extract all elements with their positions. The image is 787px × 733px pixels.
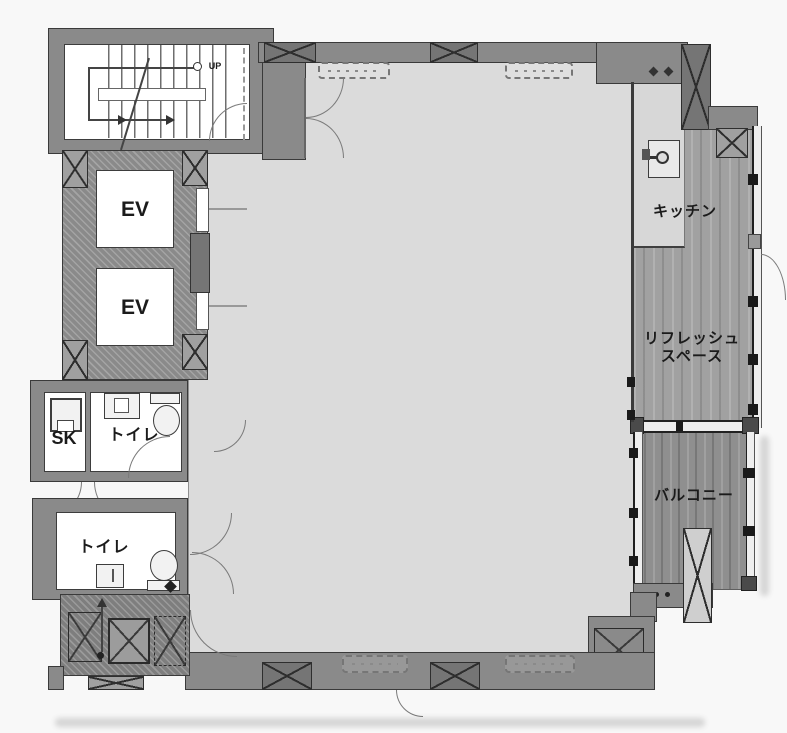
column: [262, 662, 312, 690]
window-mullion: [627, 410, 635, 420]
floor-plan: UP: [0, 0, 787, 733]
kitchen-tap-block: [642, 149, 650, 160]
refresh-space-label: リフレッシュ スペース: [630, 330, 754, 366]
conduit-dot: [97, 652, 104, 659]
window-mullion: [748, 404, 758, 415]
stair-arrow: [166, 115, 175, 125]
column: [62, 340, 88, 380]
elevator-label: EV: [96, 295, 174, 320]
toilet-sink: [96, 564, 124, 588]
rail-post: [743, 468, 755, 478]
column: [62, 150, 88, 188]
balcony-corner-column: [683, 528, 712, 623]
column: [264, 42, 316, 63]
window-mullion: [676, 421, 683, 431]
shaft-arrow: [97, 598, 107, 607]
refresh-space-label-line1: リフレッシュ: [630, 330, 754, 348]
column: [430, 42, 478, 63]
rail-post: [743, 526, 755, 536]
kitchen-label: キッチン: [637, 203, 733, 221]
exterior-door-arc: [396, 690, 423, 717]
pipe-shaft-box: [108, 618, 150, 664]
shaft-arrow-line: [101, 606, 103, 652]
elevator-door-line: [209, 305, 247, 307]
kitchen-top-wall: [708, 106, 758, 130]
drop-shadow-bottom: [55, 718, 705, 727]
stair-run-line: [88, 67, 196, 69]
refresh-space-label-line2: スペース: [630, 348, 754, 366]
window-vent: [505, 655, 575, 673]
interior-window-line: [631, 82, 634, 422]
door-frame-block: [748, 234, 761, 249]
column: [182, 334, 208, 370]
stair-up-label: UP: [203, 61, 227, 72]
stair-up-start-circle: [193, 62, 202, 71]
toilet-sink-basin: [114, 398, 129, 413]
corner-column: [681, 44, 711, 130]
drop-shadow-right: [760, 436, 769, 596]
top-right-wall: [596, 42, 688, 84]
stair-run-line-vertical: [88, 67, 90, 121]
elevator-door: [196, 188, 209, 232]
rail-post: [629, 556, 638, 566]
column: [430, 662, 480, 690]
balcony-right-rail: [746, 432, 755, 590]
rail-corner-block: [741, 576, 757, 591]
bottom-wall: [185, 652, 655, 690]
window-mullion: [748, 174, 758, 185]
window-vent: [505, 62, 573, 79]
balcony-window-band: [633, 420, 755, 433]
wall-stub: [88, 676, 144, 690]
stair-landing: [98, 88, 206, 101]
toilet-tank: [150, 393, 180, 404]
window-mullion: [748, 296, 758, 307]
toilet-label-lower: トイレ: [58, 538, 150, 557]
elevator-call-pier: [190, 233, 210, 293]
rail-post: [629, 448, 638, 458]
sk-label: SK: [38, 428, 90, 450]
elevator-door-line: [209, 208, 247, 210]
balcony-label: バルコニー: [640, 487, 748, 505]
elevator-label: EV: [96, 197, 174, 222]
window-mullion: [627, 377, 635, 387]
wall-bolt: [665, 592, 670, 597]
column: [182, 150, 208, 186]
window-vent: [342, 655, 408, 673]
exterior-door-arc: [761, 254, 786, 300]
window-vent: [318, 62, 390, 79]
toilet-bowl: [150, 550, 178, 581]
column: [716, 128, 748, 158]
wall-stub: [48, 666, 64, 690]
rail-post: [629, 508, 638, 518]
stair-arrow: [118, 115, 127, 125]
pipe-shaft-box: [154, 616, 186, 666]
